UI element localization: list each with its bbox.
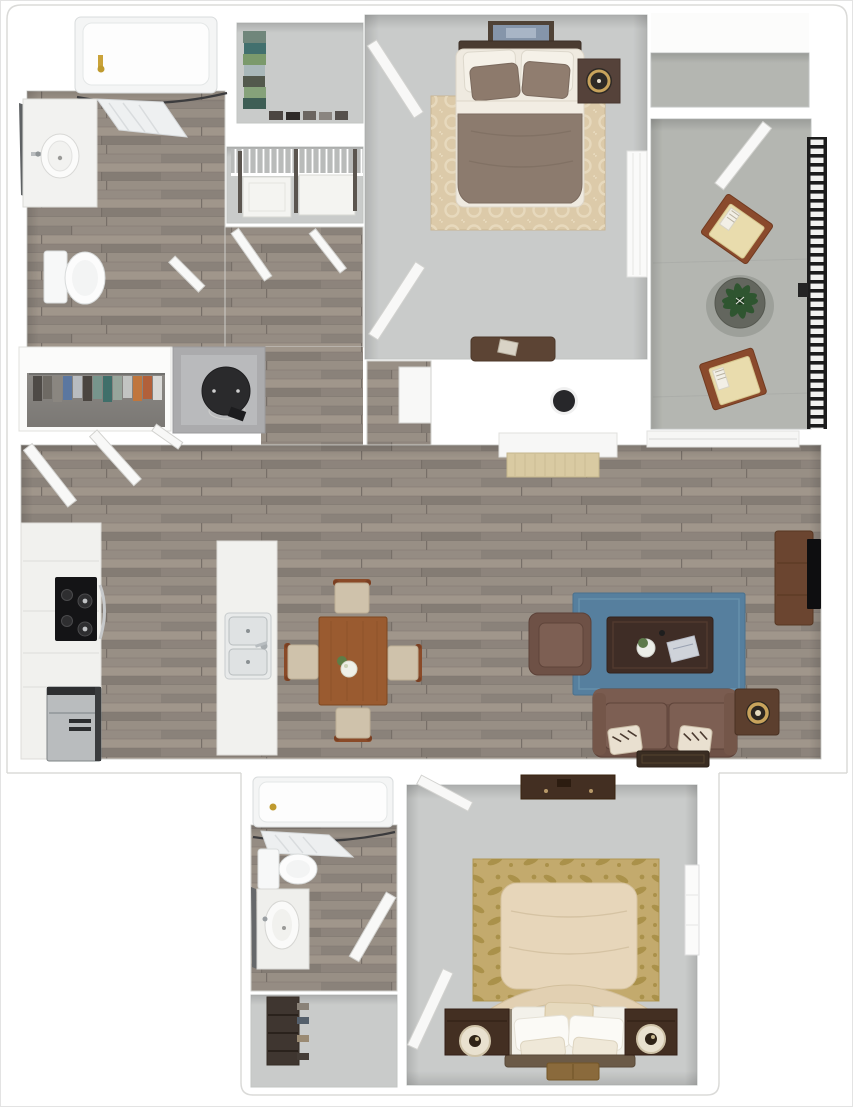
burner: [62, 590, 73, 601]
alcove-sliding-panel: [399, 367, 431, 423]
burner: [62, 616, 73, 627]
closet-pole: [353, 149, 357, 211]
heater-fitting: [236, 389, 240, 393]
lamp-left-dot: [475, 1037, 479, 1041]
clothes-item: [244, 87, 266, 98]
clothes-item: [244, 65, 265, 76]
toilet-2-seat: [286, 860, 310, 878]
dresser-knob: [544, 789, 548, 793]
utility-closet: [173, 347, 265, 433]
table-lamp-finial: [597, 79, 601, 83]
sofa-pillow: [607, 725, 642, 755]
water-heater: [202, 367, 250, 415]
lamp-right-center: [645, 1033, 657, 1045]
floors: [21, 13, 821, 1087]
shoe: [286, 112, 300, 120]
shoe: [319, 112, 332, 120]
garment: [93, 376, 102, 399]
shoe: [297, 1017, 309, 1024]
shoe: [335, 111, 348, 120]
lamp-left-center: [469, 1035, 481, 1047]
toilet-seat: [72, 260, 98, 296]
centerpiece-flowers: [341, 661, 357, 677]
kitchen-island: [217, 541, 277, 755]
sofa: [593, 689, 737, 757]
storage-bin: [299, 175, 355, 215]
bed-pillow-taupe: [522, 61, 571, 99]
burner-cap: [83, 599, 88, 604]
railing-bracket: [798, 283, 808, 297]
balcony-storage-backwall: [651, 13, 809, 55]
chair-seat: [335, 583, 369, 613]
clothes-item: [244, 43, 266, 54]
dining-chair-top: [333, 579, 371, 613]
dresser-item: [557, 779, 571, 787]
shoe: [269, 111, 283, 120]
side-lamp-finial: [755, 710, 761, 716]
floorplan-svg: [1, 1, 853, 1107]
closet-wire: [231, 149, 363, 217]
bathtub-2-basin: [259, 782, 387, 822]
garment: [103, 376, 112, 402]
garment: [123, 376, 132, 398]
garment: [83, 376, 92, 401]
bed-2-comforter: [501, 883, 637, 989]
garment: [143, 376, 152, 399]
garment: [113, 376, 122, 400]
sink-2-drain: [282, 926, 286, 930]
garment: [63, 376, 72, 400]
shoe: [297, 1035, 309, 1042]
closet-pole: [294, 149, 298, 213]
garment: [53, 376, 62, 402]
shoe-rack: [267, 997, 299, 1065]
entry-mat: [637, 751, 709, 767]
heater-fitting: [212, 389, 216, 393]
railing-rail: [824, 137, 828, 429]
dining-chair-right: [388, 644, 422, 682]
toilet-2-tank: [258, 849, 279, 889]
sink-faucet-base: [35, 151, 40, 156]
bathtub-basin: [83, 23, 209, 85]
clothes-item: [243, 54, 266, 65]
clothes-item: [243, 76, 265, 87]
garment: [33, 376, 42, 401]
sofa-back: [593, 689, 737, 704]
toilet-tank: [44, 251, 67, 303]
shoe: [297, 1003, 309, 1010]
table-coaster: [659, 630, 665, 636]
table-plant: [638, 638, 648, 648]
coffee-table: [607, 617, 713, 673]
fridge-handle: [69, 727, 91, 731]
mirror-2: [251, 887, 257, 969]
garment: [73, 376, 82, 398]
bedroom-2-window: [685, 865, 699, 955]
bedroom-1-window: [627, 151, 647, 277]
shoe: [297, 1053, 309, 1060]
floorplan-render: [0, 0, 853, 1107]
hall-closet: [19, 347, 171, 431]
shoe-row: [269, 111, 348, 120]
sink-drain: [58, 156, 62, 160]
dining-chair-bottom: [334, 708, 372, 742]
coffee-table-top: [607, 617, 713, 673]
fridge-side: [95, 687, 101, 761]
sink-2-faucet: [263, 917, 268, 922]
hallway-mid-floor: [261, 347, 363, 447]
tub-faucet: [98, 66, 105, 73]
garment: [43, 376, 52, 399]
dresser-knob: [589, 789, 593, 793]
dining-chair-left: [284, 643, 318, 681]
chair-seat: [336, 708, 370, 738]
sofa-armrest: [593, 693, 606, 755]
clothes-item: [243, 31, 266, 43]
flower-detail: [344, 664, 348, 668]
armchair-cushion: [539, 623, 583, 667]
tv: [807, 539, 821, 609]
burner-cap: [83, 627, 88, 632]
fridge-handle: [69, 719, 91, 723]
sink-drain: [246, 660, 250, 664]
fridge-top-edge: [47, 687, 101, 695]
tub-2-faucet: [270, 804, 277, 811]
garment: [133, 376, 142, 401]
wall-art-detail: [506, 28, 536, 38]
chair-seat: [388, 646, 418, 680]
lamp-right-dot: [651, 1035, 655, 1039]
side-table: [735, 689, 779, 735]
bed-comforter: [458, 114, 582, 203]
closet-pole: [238, 151, 242, 213]
balcony-storage-floor: [651, 53, 809, 107]
sink-drain: [246, 629, 250, 633]
sink-2-basin: [272, 909, 292, 941]
shoe: [303, 111, 316, 120]
wall-dot-fixture: [553, 390, 575, 412]
sofa-pillow: [678, 725, 713, 755]
folded-clothes-stack: [243, 31, 266, 109]
garment: [153, 376, 162, 400]
clothes-item: [243, 98, 266, 109]
refrigerator: [47, 687, 101, 761]
potted-plant: [706, 275, 774, 337]
armchair: [529, 613, 591, 675]
bed-pillow-taupe: [469, 63, 520, 102]
chair-seat: [288, 645, 318, 679]
fridge-body: [47, 687, 101, 761]
